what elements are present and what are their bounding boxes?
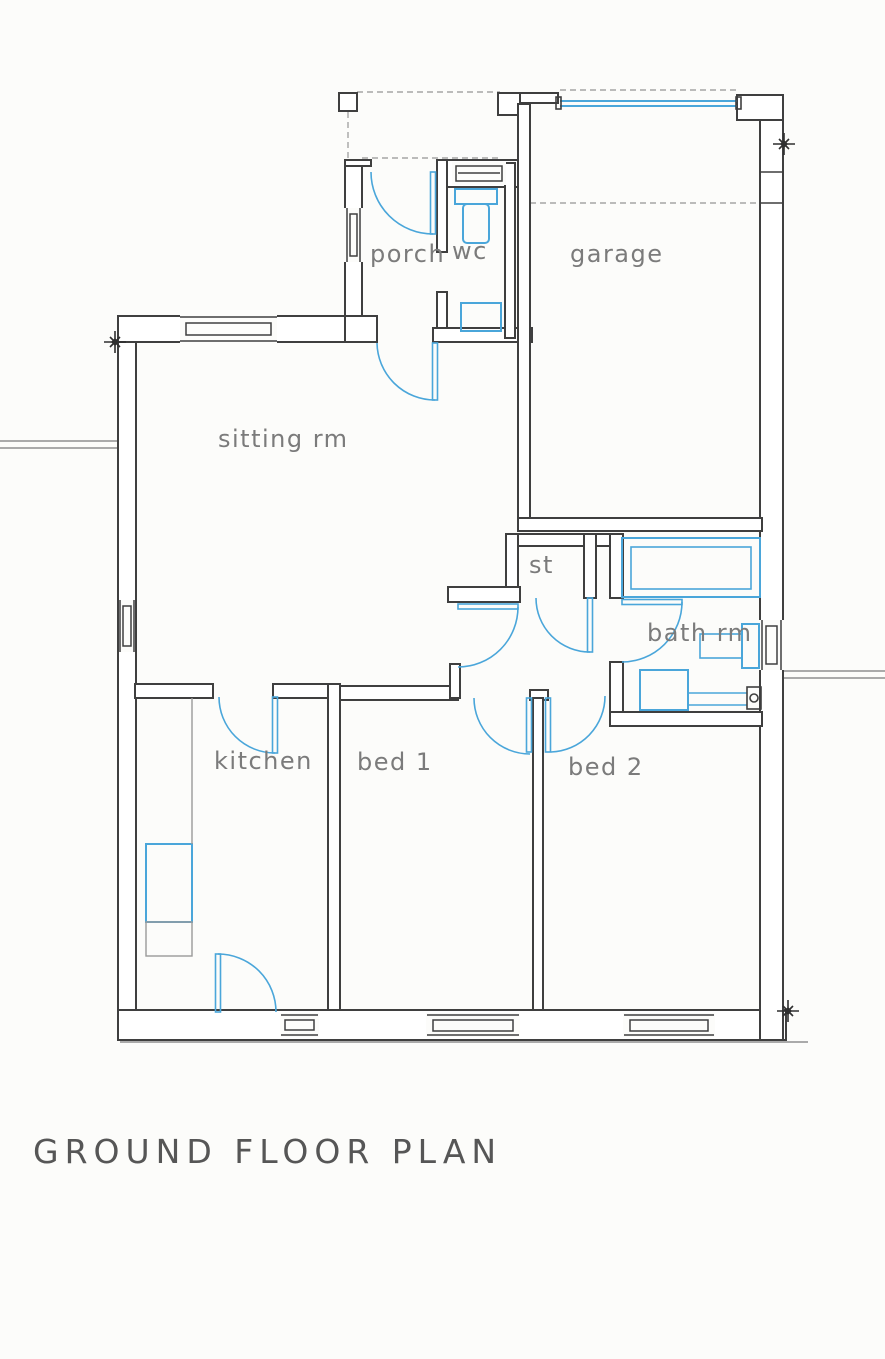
wall-garage-left <box>518 104 530 518</box>
wall-bath-bottom <box>610 712 762 726</box>
wall-store-right <box>584 534 596 598</box>
garage-pier-left-b <box>498 93 520 115</box>
kitchen-counter <box>146 698 192 956</box>
room-label-wc: wc <box>452 237 488 265</box>
porch-to-sitting-door <box>377 343 438 400</box>
wc-toilet <box>455 189 497 243</box>
room-label-bath: bath rm <box>647 619 753 647</box>
bathroom-toilet <box>640 670 761 710</box>
walls <box>118 93 786 1040</box>
room-label-store: st <box>529 551 554 579</box>
wall-bed1-top <box>340 686 458 700</box>
wall-bath-left-lower <box>610 662 623 718</box>
garage-door <box>556 97 741 109</box>
garage-pier-right <box>737 95 783 120</box>
window-sitting-left <box>119 600 135 652</box>
kitchen-exterior-door <box>216 954 277 1012</box>
wall-left <box>118 316 136 1032</box>
room-label-bed2: bed 2 <box>568 753 644 781</box>
wall-bed1-bed2-divider <box>533 698 543 1010</box>
wall-garage-bottom <box>518 518 762 531</box>
floor-plan-canvas: porch wc garage sitting rm st bath rm ki… <box>0 0 885 1359</box>
window-porch-left <box>344 208 363 262</box>
boundary-line-left <box>0 441 118 448</box>
bed2-door <box>546 696 606 752</box>
floor-plan-page: porch wc garage sitting rm st bath rm ki… <box>0 0 885 1359</box>
kitchen-inner-door <box>219 697 278 753</box>
wc-basin <box>461 303 501 331</box>
window-wc-top <box>452 162 506 185</box>
bathtub <box>622 538 760 597</box>
window-sitting-top <box>180 314 277 344</box>
wall-porch-bottom <box>345 316 377 342</box>
window-bed1-bottom <box>426 1013 520 1037</box>
wall-hall-stub-west <box>450 664 460 698</box>
entrance-pillar <box>339 93 357 111</box>
wall-kitchen-top-a <box>135 684 213 698</box>
room-label-bed1: bed 1 <box>357 748 433 776</box>
store-door <box>536 598 593 652</box>
wall-store-top <box>506 534 614 546</box>
wall-wc-east <box>505 163 515 338</box>
room-label-sitting: sitting rm <box>218 425 349 453</box>
drawing-title: GROUND FLOOR PLAN <box>33 1132 502 1171</box>
room-label-kitchen: kitchen <box>214 747 313 775</box>
porch-entrance-door <box>371 172 436 234</box>
room-label-garage: garage <box>570 240 664 268</box>
bed1-door <box>474 698 532 754</box>
window-bathroom-right <box>759 620 784 670</box>
boundary-line-right <box>783 671 885 678</box>
wall-kitchen-bed1-divider <box>328 684 340 1010</box>
room-label-porch: porch <box>370 240 445 268</box>
porch-lintel <box>345 160 371 166</box>
wall-kitchen-top-b <box>273 684 333 698</box>
wall-store-left <box>506 534 518 590</box>
wall-wc-west-upper <box>437 160 447 252</box>
sitting-to-hall-door <box>458 604 518 667</box>
window-kitchen-bottom <box>280 1013 319 1037</box>
wall-right <box>760 117 783 1040</box>
window-bed2-bottom <box>623 1013 715 1037</box>
wall-sitting-south <box>448 587 520 602</box>
wall-wc-west-lower <box>437 292 447 328</box>
